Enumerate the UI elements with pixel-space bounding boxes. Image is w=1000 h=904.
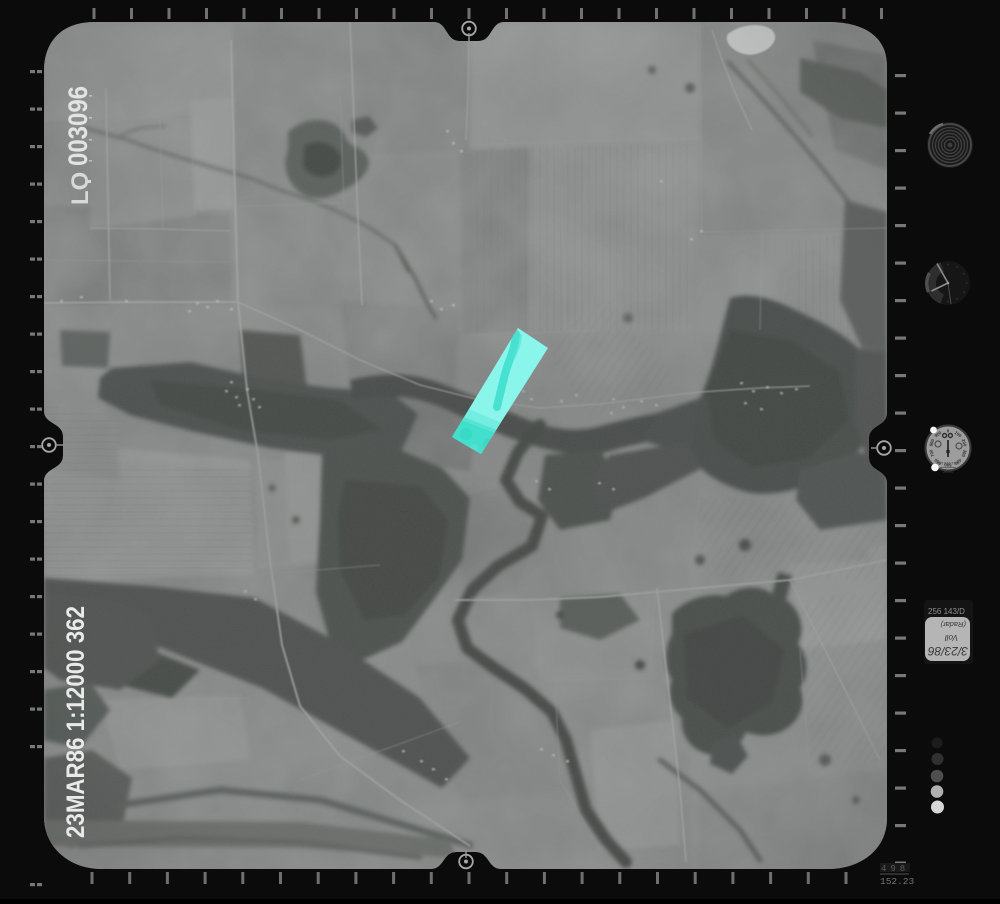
svg-text:152.23: 152.23 (880, 876, 915, 887)
svg-text:256 143/D: 256 143/D (928, 607, 965, 616)
svg-text:498: 498 (881, 864, 909, 874)
svg-text:(Radar): (Radar) (940, 620, 966, 629)
svg-text:LO: LO (67, 172, 94, 205)
svg-text:ALTIMETER: ALTIMETER (936, 462, 960, 466)
svg-text:23MAR86 1:12000 362: 23MAR86 1:12000 362 (62, 606, 90, 838)
svg-text:Voll: Voll (945, 633, 958, 642)
svg-text:3/23/86: 3/23/86 (928, 644, 968, 658)
svg-text:003096: 003096 (63, 86, 93, 166)
svg-text:25 000: 25 000 (943, 470, 953, 474)
